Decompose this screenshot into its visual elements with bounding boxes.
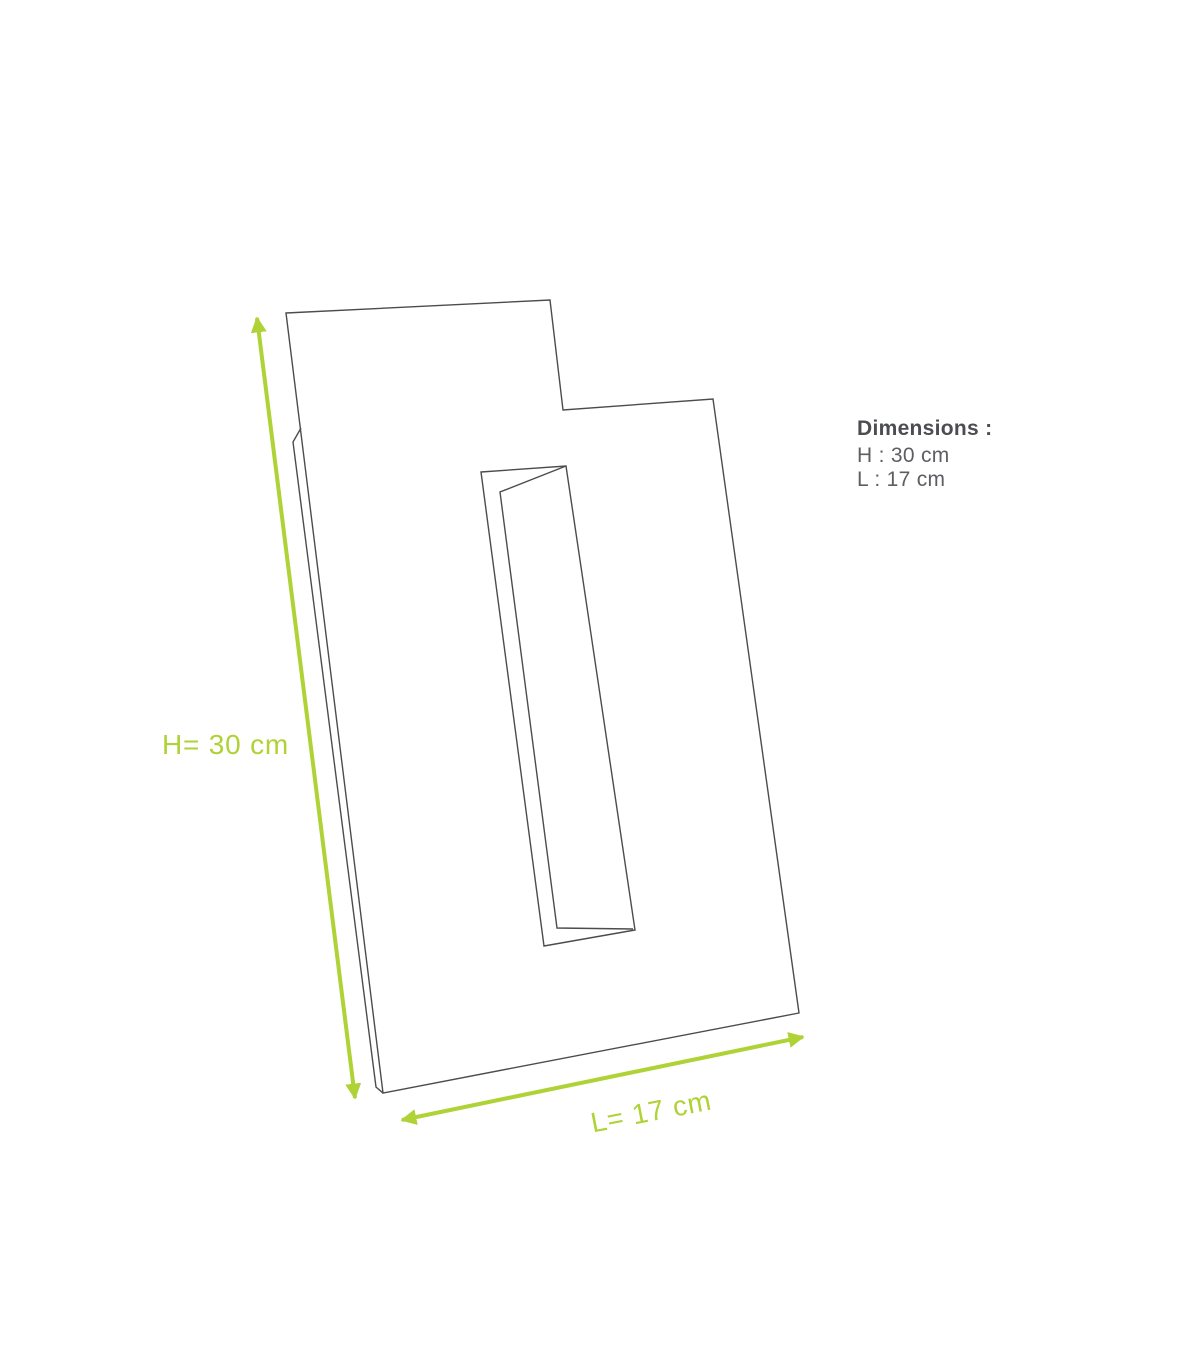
dimension-length-text: L : 17 cm xyxy=(857,468,992,492)
panel-front-outline xyxy=(286,300,799,1093)
product-outline-group xyxy=(286,300,799,1093)
slot-front-outline xyxy=(481,466,635,946)
dimensions-panel-title: Dimensions : xyxy=(857,417,992,441)
technical-line-drawing xyxy=(0,0,1200,1372)
height-dimension-arrow-icon xyxy=(257,318,355,1098)
slot-inner-wall-lines xyxy=(500,466,633,929)
dimensions-info-panel: Dimensions : H : 30 cm L : 17 cm xyxy=(857,417,992,492)
height-dimension-label: H= 30 cm xyxy=(162,729,289,761)
dimension-height-text: H : 30 cm xyxy=(857,444,992,468)
panel-side-thickness-edge xyxy=(293,428,383,1093)
product-dimension-diagram: H= 30 cm L= 17 cm Dimensions : H : 30 cm… xyxy=(0,0,1200,1372)
